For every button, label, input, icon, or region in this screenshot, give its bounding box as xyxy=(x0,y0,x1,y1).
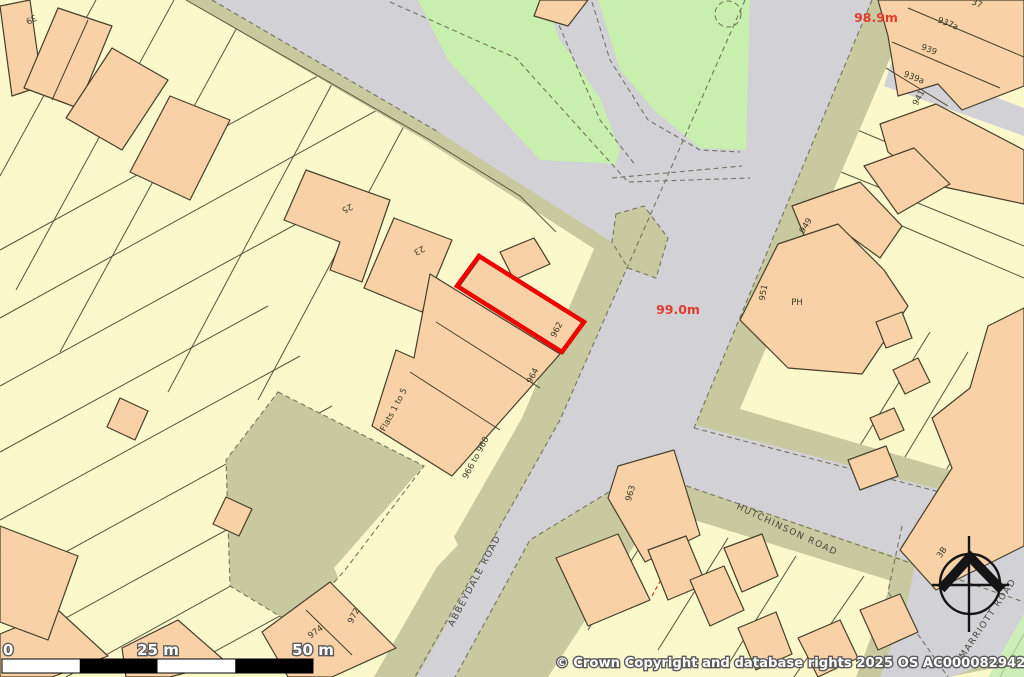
scale-bar-segment xyxy=(80,659,158,673)
building-937-terrace xyxy=(878,0,1024,110)
scale-label-25m: 25 m xyxy=(137,641,179,659)
scale-label-0: 0 xyxy=(3,641,13,659)
os-map-plan: 98.9m 99.0m 39 25 23 962 964 966 to 968 … xyxy=(0,0,1024,677)
elevation-label: 99.0m xyxy=(656,302,700,317)
scale-bar-segment xyxy=(235,659,313,673)
copyright-notice: © Crown Copyright and database rights 20… xyxy=(555,656,1024,671)
pub-label: PH xyxy=(791,298,803,308)
scale-label-50m: 50 m xyxy=(292,641,334,659)
elevation-label: 98.9m xyxy=(854,10,898,25)
map-canvas: 98.9m 99.0m 39 25 23 962 964 966 to 968 … xyxy=(0,0,1024,677)
